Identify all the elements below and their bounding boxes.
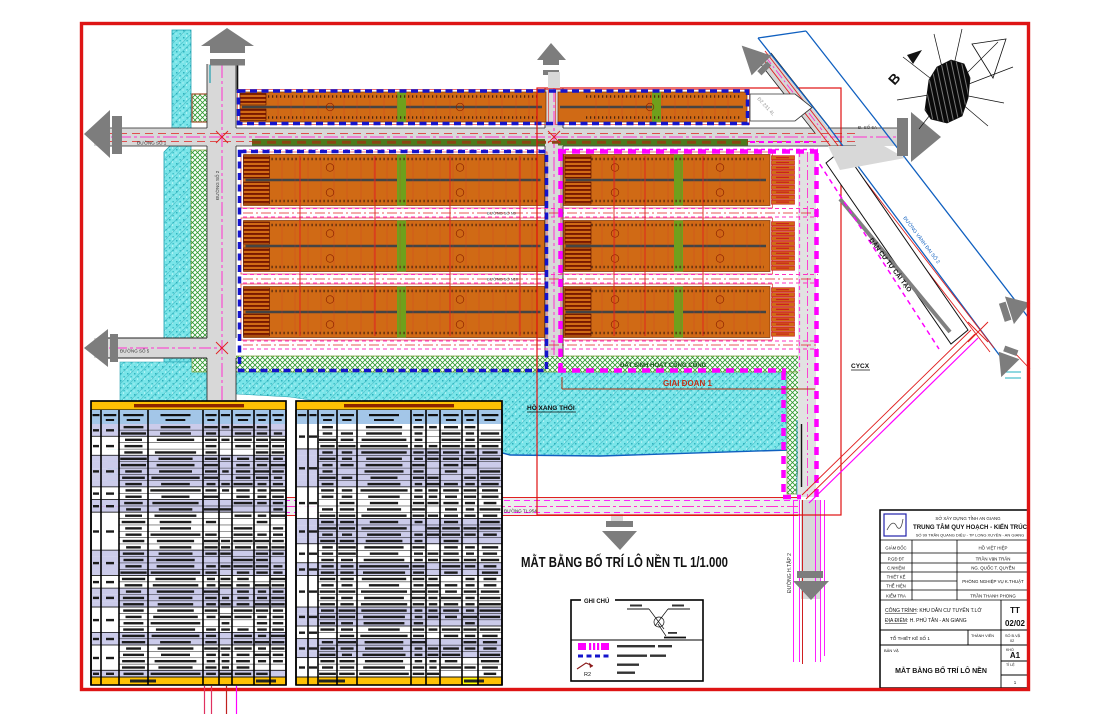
svg-text:R2: R2 xyxy=(584,672,591,678)
svg-text:SỞ XÂY DỰNG TỈNH AN GIANG: SỞ XÂY DỰNG TỈNH AN GIANG xyxy=(935,516,1001,521)
svg-text:CÔNG TRÌNH: KHU DÂN CƯ TUYẾN T: CÔNG TRÌNH: KHU DÂN CƯ TUYẾN T.LỚ xyxy=(885,607,982,614)
svg-text:A1: A1 xyxy=(1010,651,1021,660)
svg-text:ĐƯỜNG TL 954: ĐƯỜNG TL 954 xyxy=(504,508,537,514)
svg-text:SỐ 99 TRẦN QUANG DIỆU - TP LON: SỐ 99 TRẦN QUANG DIỆU - TP LONG XUYÊN - … xyxy=(916,533,1024,538)
svg-text:ĐƯỜNG SỐ N9: ĐƯỜNG SỐ N9 xyxy=(487,211,517,216)
svg-text:TRẦN VăN TRẤN: TRẦN VăN TRẤN xyxy=(976,557,1011,562)
svg-text:02/02: 02/02 xyxy=(1005,619,1026,628)
svg-text:TT: TT xyxy=(1010,606,1020,615)
svg-text:SỐ B.VẶ: SỐ B.VẶ xyxy=(1005,633,1021,638)
svg-text:GIÁM ĐỐC: GIÁM ĐỐC xyxy=(885,546,906,551)
svg-text:HỒ VIỆT HIỆP: HỒ VIỆT HIỆP xyxy=(979,546,1008,551)
svg-text:CYCX: CYCX xyxy=(851,363,870,370)
svg-text:ĐƯỜNG SỐ 2: ĐƯỜNG SỐ 2 xyxy=(214,170,220,200)
svg-text:KIỂM TRA: KIỂM TRA xyxy=(886,594,906,599)
svg-text:BẢN VẶ: BẢN VẶ xyxy=(884,648,899,653)
svg-text:02: 02 xyxy=(1010,639,1014,643)
svg-text:ĐƯỜNG SỐ 5: ĐƯỜNG SỐ 5 xyxy=(120,348,150,354)
svg-text:P.GĐ ĐT: P.GĐ ĐT xyxy=(888,557,905,562)
svg-text:C.NHIỆM: C.NHIỆM xyxy=(887,566,905,571)
svg-text:GIAI ĐOẠN 1: GIAI ĐOẠN 1 xyxy=(663,379,712,388)
svg-text:TỈ LỆ: TỈ LỆ xyxy=(1006,662,1015,667)
svg-text:ĐƯỜNG SỐ 1: ĐƯỜNG SỐ 1 xyxy=(137,140,167,146)
svg-text:TRẦN THANH PHONG: TRẦN THANH PHONG xyxy=(970,594,1016,599)
svg-text:THIẾT KẾ: THIẾT KẾ xyxy=(887,575,906,580)
svg-text:GHI CHÚ: GHI CHÚ xyxy=(584,598,609,605)
svg-text:ĐƯỜNG H.TẬP 2: ĐƯỜNG H.TẬP 2 xyxy=(786,553,793,593)
svg-text:Đ. SỐ 6A: Đ. SỐ 6A xyxy=(858,124,877,130)
svg-text:ĐẤT SINH HOẠT CỘNG CỘNG: ĐẤT SINH HOẠT CỘNG CỘNG xyxy=(620,361,707,369)
svg-text:TỔ THIẾT KẾ SỐ 1: TỔ THIẾT KẾ SỐ 1 xyxy=(890,635,930,641)
svg-text:TRUNG TÂM QUY HOẠCH - KIẾN TRÚ: TRUNG TÂM QUY HOẠCH - KIẾN TRÚC xyxy=(913,524,1028,531)
svg-text:ĐƯỜNG SỐ N10: ĐƯỜNG SỐ N10 xyxy=(487,277,519,282)
svg-text:ĐỊA ĐIỂM: H. PHÚ TÂN - AN GIAN: ĐỊA ĐIỂM: H. PHÚ TÂN - AN GIANG xyxy=(885,617,967,624)
svg-text:THỂ HIỆN: THỂ HIỆN xyxy=(886,584,906,589)
svg-text:THÀNH VIÊN: THÀNH VIÊN xyxy=(971,633,994,638)
svg-text:NG. QUỐC T. QUYỀN: NG. QUỐC T. QUYỀN xyxy=(971,566,1015,571)
svg-text:PHÒNG NGHIỆP VỤ K.THUẬT: PHÒNG NGHIỆP VỤ K.THUẬT xyxy=(962,579,1024,584)
svg-text:MẰT BẰNG BỐ TRÍ LÔ NỀN TL 1/1.: MẰT BẰNG BỐ TRÍ LÔ NỀN TL 1/1.000 xyxy=(521,553,728,571)
